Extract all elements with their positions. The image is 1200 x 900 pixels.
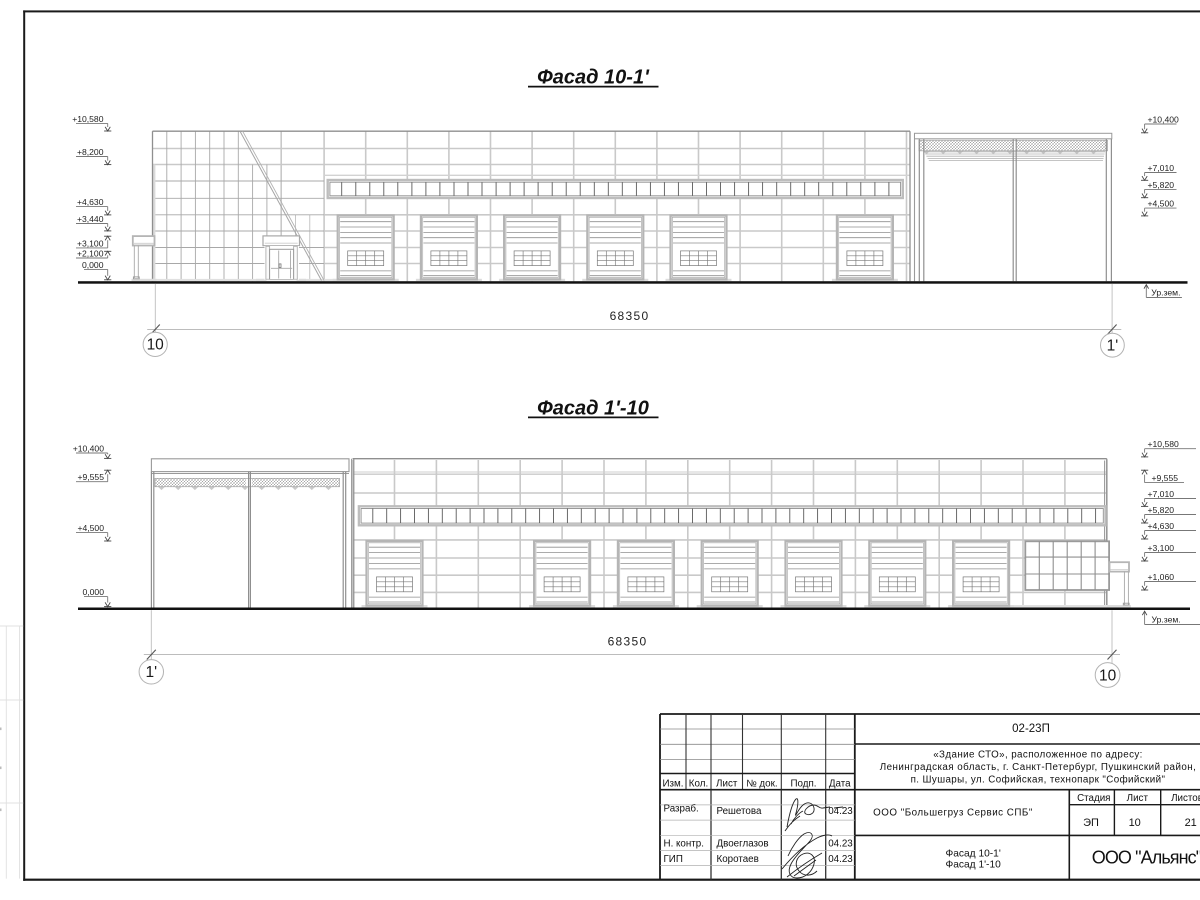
svg-text:«Здание СТО», расположенное по: «Здание СТО», расположенное по адресу: [933,750,1143,761]
svg-text:Ур.зем.: Ур.зем. [1151,287,1180,297]
svg-text:Лист: Лист [1127,793,1149,804]
svg-text:ГИП: ГИП [664,854,683,865]
svg-text:+3,100: +3,100 [77,238,104,248]
svg-text:1': 1' [1107,338,1119,355]
svg-text:+5,820: +5,820 [1148,505,1175,515]
svg-text:68350: 68350 [610,309,650,323]
svg-text:02-23П: 02-23П [1012,723,1050,735]
svg-text:Фасад 10-1': Фасад 10-1' [537,67,650,89]
svg-text:0,000: 0,000 [82,260,104,270]
svg-text:Фасад 1'-10: Фасад 1'-10 [537,397,649,419]
svg-text:Дата: Дата [829,778,851,789]
svg-text:+2,100: +2,100 [77,248,104,258]
svg-text:ЭП: ЭП [1083,817,1099,829]
svg-text:Фасад 1'-10: Фасад 1'-10 [946,860,1002,871]
svg-text:10: 10 [147,337,165,354]
svg-text:№ док.: № док. [746,778,777,789]
svg-text:п. Шушары, ул. Софийская, техн: п. Шушары, ул. Софийская, технопарк "Соф… [911,775,1166,786]
svg-text:+3,440: +3,440 [77,214,104,224]
svg-text:Коротаев: Коротаев [717,854,759,865]
svg-text:+10,400: +10,400 [73,443,105,453]
svg-text:Стадия: Стадия [1077,793,1110,804]
svg-text:+5,820: +5,820 [1148,180,1175,190]
svg-text:21: 21 [1185,817,1197,829]
svg-text:+4,500: +4,500 [1148,199,1175,209]
svg-text:0,000: 0,000 [82,587,104,597]
svg-text:+10,580: +10,580 [1148,439,1180,449]
svg-text:Решетова: Решетова [717,806,762,817]
svg-text:10: 10 [1129,817,1141,829]
svg-text:Подп.: Подп. [790,778,816,789]
svg-text:Разраб.: Разраб. [664,804,699,815]
svg-text:Кол.: Кол. [689,778,708,789]
svg-text:Изм.: Изм. [663,778,684,789]
svg-text:+10,580: +10,580 [72,114,104,124]
svg-text:10: 10 [1099,667,1117,684]
svg-text:+1,060: +1,060 [1148,572,1175,582]
svg-text:1': 1' [146,664,158,681]
svg-text:04.23: 04.23 [828,839,853,850]
svg-text:+10,400: +10,400 [1148,114,1180,124]
svg-text:+7,010: +7,010 [1148,163,1175,173]
svg-text:Листов: Листов [1171,793,1200,804]
svg-text:+9,555: +9,555 [1152,473,1179,483]
svg-text:+3,100: +3,100 [1148,543,1175,553]
svg-text:+8,200: +8,200 [77,147,104,157]
svg-text:68350: 68350 [608,634,648,648]
svg-text:+4,500: +4,500 [77,523,104,533]
svg-text:ООО "Альянс": ООО "Альянс" [1092,848,1200,868]
svg-text:+4,630: +4,630 [77,197,104,207]
svg-text:+9,555: +9,555 [77,472,104,482]
svg-text:Ленинградская область, г. Санк: Ленинградская область, г. Санкт-Петербур… [880,762,1197,773]
svg-text:Ур.зем.: Ур.зем. [1152,614,1181,624]
svg-text:+4,630: +4,630 [1148,521,1175,531]
svg-text:Лист: Лист [716,778,738,789]
svg-text:04.23: 04.23 [828,854,853,865]
svg-text:Н. контр.: Н. контр. [664,839,704,850]
svg-text:ООО "Большегруз Сервис СПБ": ООО "Большегруз Сервис СПБ" [873,807,1033,818]
svg-text:Двоеглазов: Двоеглазов [717,839,769,850]
svg-text:+7,010: +7,010 [1148,489,1175,499]
svg-text:Фасад 10-1': Фасад 10-1' [946,848,1001,859]
